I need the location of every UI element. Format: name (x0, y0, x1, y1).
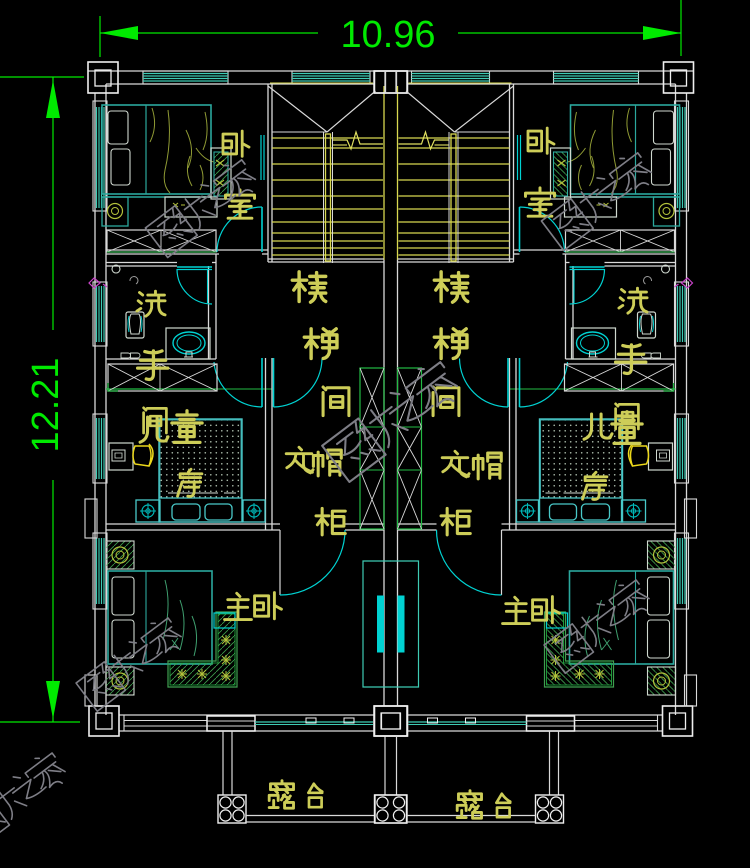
svg-text:12.21: 12.21 (25, 357, 67, 452)
svg-text:10.96: 10.96 (340, 14, 435, 56)
